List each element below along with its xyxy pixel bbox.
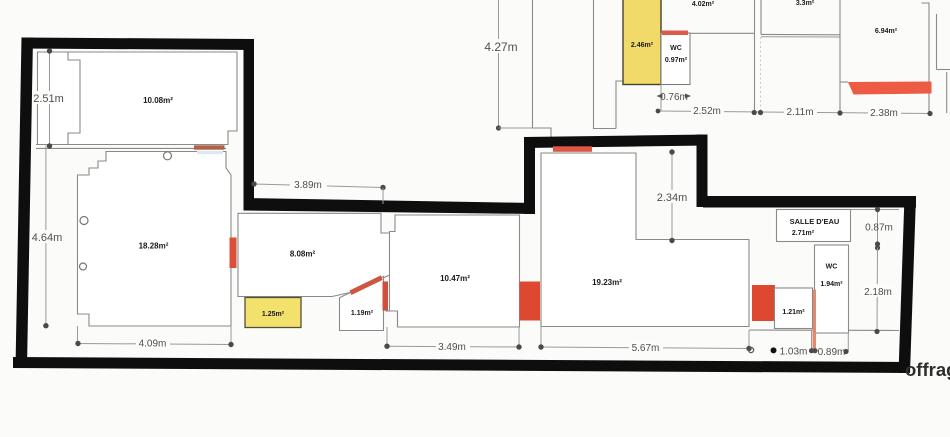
svg-text:3.3m²: 3.3m² — [796, 0, 815, 7]
svg-text:2.34m: 2.34m — [657, 192, 688, 204]
svg-text:5.67m: 5.67m — [632, 343, 660, 354]
svg-text:10.47m²: 10.47m² — [440, 274, 470, 283]
svg-text:10.08m²: 10.08m² — [143, 96, 173, 105]
svg-text:0.76m: 0.76m — [660, 92, 688, 103]
svg-text:2.71m²: 2.71m² — [792, 230, 815, 237]
svg-text:SALLE D'EAU: SALLE D'EAU — [790, 217, 840, 226]
svg-text:2.11m: 2.11m — [786, 107, 813, 118]
svg-text:1.94m²: 1.94m² — [820, 281, 843, 288]
svg-text:4.64m: 4.64m — [32, 232, 63, 244]
svg-text:3.89m: 3.89m — [294, 180, 322, 191]
svg-text:4.09m: 4.09m — [139, 339, 167, 350]
svg-text:18.28m²: 18.28m² — [139, 242, 169, 251]
svg-text:0.97m²: 0.97m² — [665, 57, 688, 64]
svg-text:1.21m²: 1.21m² — [782, 309, 805, 316]
svg-text:19.23m²: 19.23m² — [592, 278, 622, 287]
svg-text:WC: WC — [670, 45, 682, 52]
svg-text:6.94m²: 6.94m² — [875, 28, 898, 35]
svg-text:2.18m: 2.18m — [864, 287, 892, 298]
svg-text:1.03m: 1.03m — [780, 347, 808, 358]
svg-text:2.38m: 2.38m — [870, 108, 898, 119]
svg-text:4.27m: 4.27m — [484, 40, 517, 54]
svg-text:0.87m: 0.87m — [865, 223, 893, 234]
svg-text:1.25m²: 1.25m² — [262, 311, 285, 318]
svg-text:2.46m²: 2.46m² — [631, 42, 654, 49]
svg-text:0.89m: 0.89m — [818, 347, 846, 358]
svg-text:2.51m: 2.51m — [33, 93, 64, 105]
svg-text:3.49m: 3.49m — [438, 342, 466, 353]
svg-text:4.02m²: 4.02m² — [692, 1, 715, 8]
svg-text:8.08m²: 8.08m² — [290, 250, 316, 259]
svg-text:offrag: offrag — [905, 359, 950, 380]
svg-text:WC: WC — [826, 264, 838, 271]
svg-text:1.19m²: 1.19m² — [351, 310, 374, 317]
svg-text:2.52m: 2.52m — [693, 106, 721, 117]
